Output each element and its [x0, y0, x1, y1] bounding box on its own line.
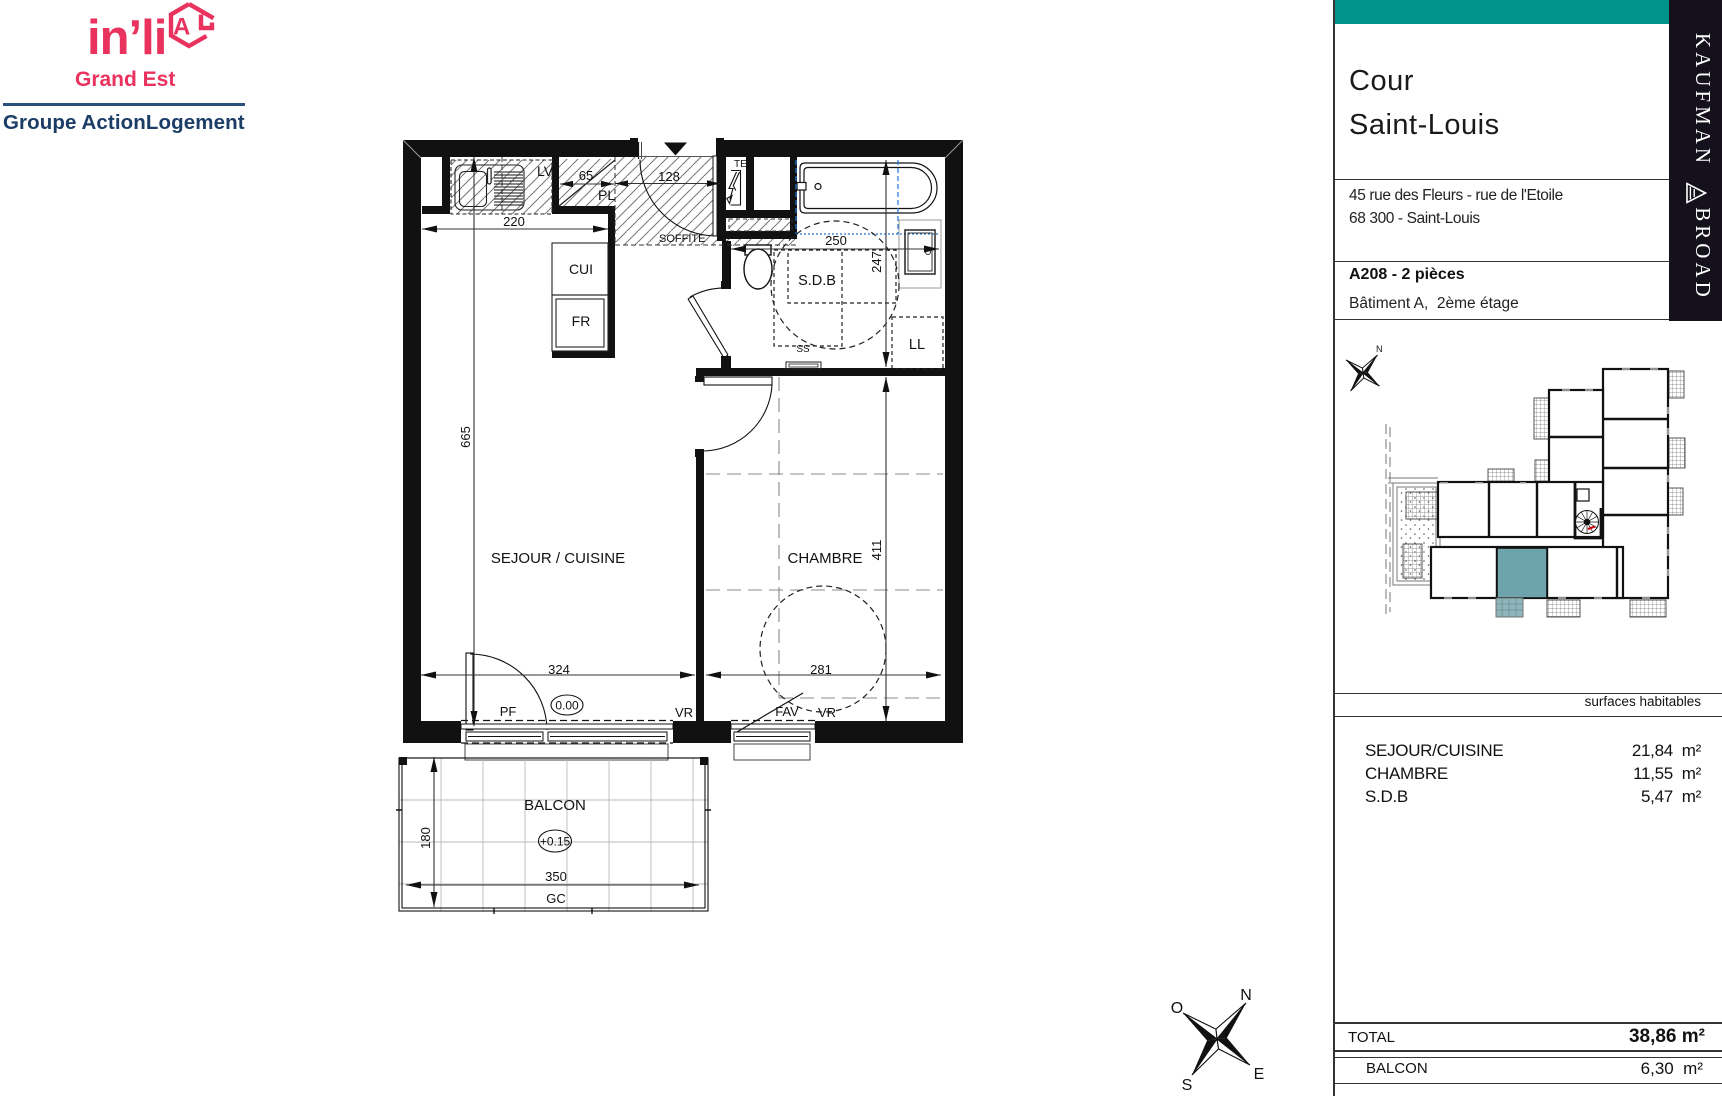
svg-text:SEJOUR / CUISINE: SEJOUR / CUISINE: [491, 550, 625, 567]
svg-text:0.00: 0.00: [555, 699, 579, 713]
svg-text:VR: VR: [818, 705, 836, 720]
svg-text:+0.15: +0.15: [540, 835, 571, 849]
svg-text:247: 247: [869, 251, 884, 273]
svg-text:TE: TE: [734, 159, 747, 170]
svg-text:O: O: [1171, 1000, 1183, 1017]
svg-text:411: 411: [869, 540, 884, 561]
svg-text:281: 281: [810, 662, 832, 677]
svg-text:CHAMBRE: CHAMBRE: [787, 550, 862, 567]
svg-text:665: 665: [458, 426, 473, 448]
svg-text:SOFFITE: SOFFITE: [659, 233, 705, 245]
svg-text:SS: SS: [796, 344, 810, 355]
svg-text:GC: GC: [546, 891, 566, 906]
svg-text:128: 128: [658, 169, 680, 184]
svg-text:BALCON: BALCON: [524, 797, 586, 814]
svg-text:LL: LL: [909, 337, 925, 353]
svg-text:65: 65: [579, 168, 593, 183]
svg-text:350: 350: [545, 869, 567, 884]
svg-text:S.D.B: S.D.B: [798, 273, 836, 289]
svg-text:S: S: [1182, 1077, 1193, 1094]
svg-text:250: 250: [825, 233, 847, 248]
svg-text:CUI: CUI: [569, 261, 593, 277]
svg-text:FAV: FAV: [775, 704, 799, 719]
svg-text:PL: PL: [598, 187, 615, 203]
svg-text:FR: FR: [572, 313, 591, 329]
svg-text:LV: LV: [537, 163, 554, 179]
svg-text:324: 324: [548, 662, 570, 677]
svg-text:PF: PF: [500, 704, 517, 719]
svg-text:N: N: [1376, 344, 1383, 354]
svg-text:220: 220: [503, 214, 525, 229]
svg-text:180: 180: [418, 827, 433, 849]
svg-text:E: E: [1254, 1066, 1265, 1083]
svg-text:VR: VR: [675, 705, 693, 720]
svg-text:N: N: [1240, 987, 1252, 1004]
